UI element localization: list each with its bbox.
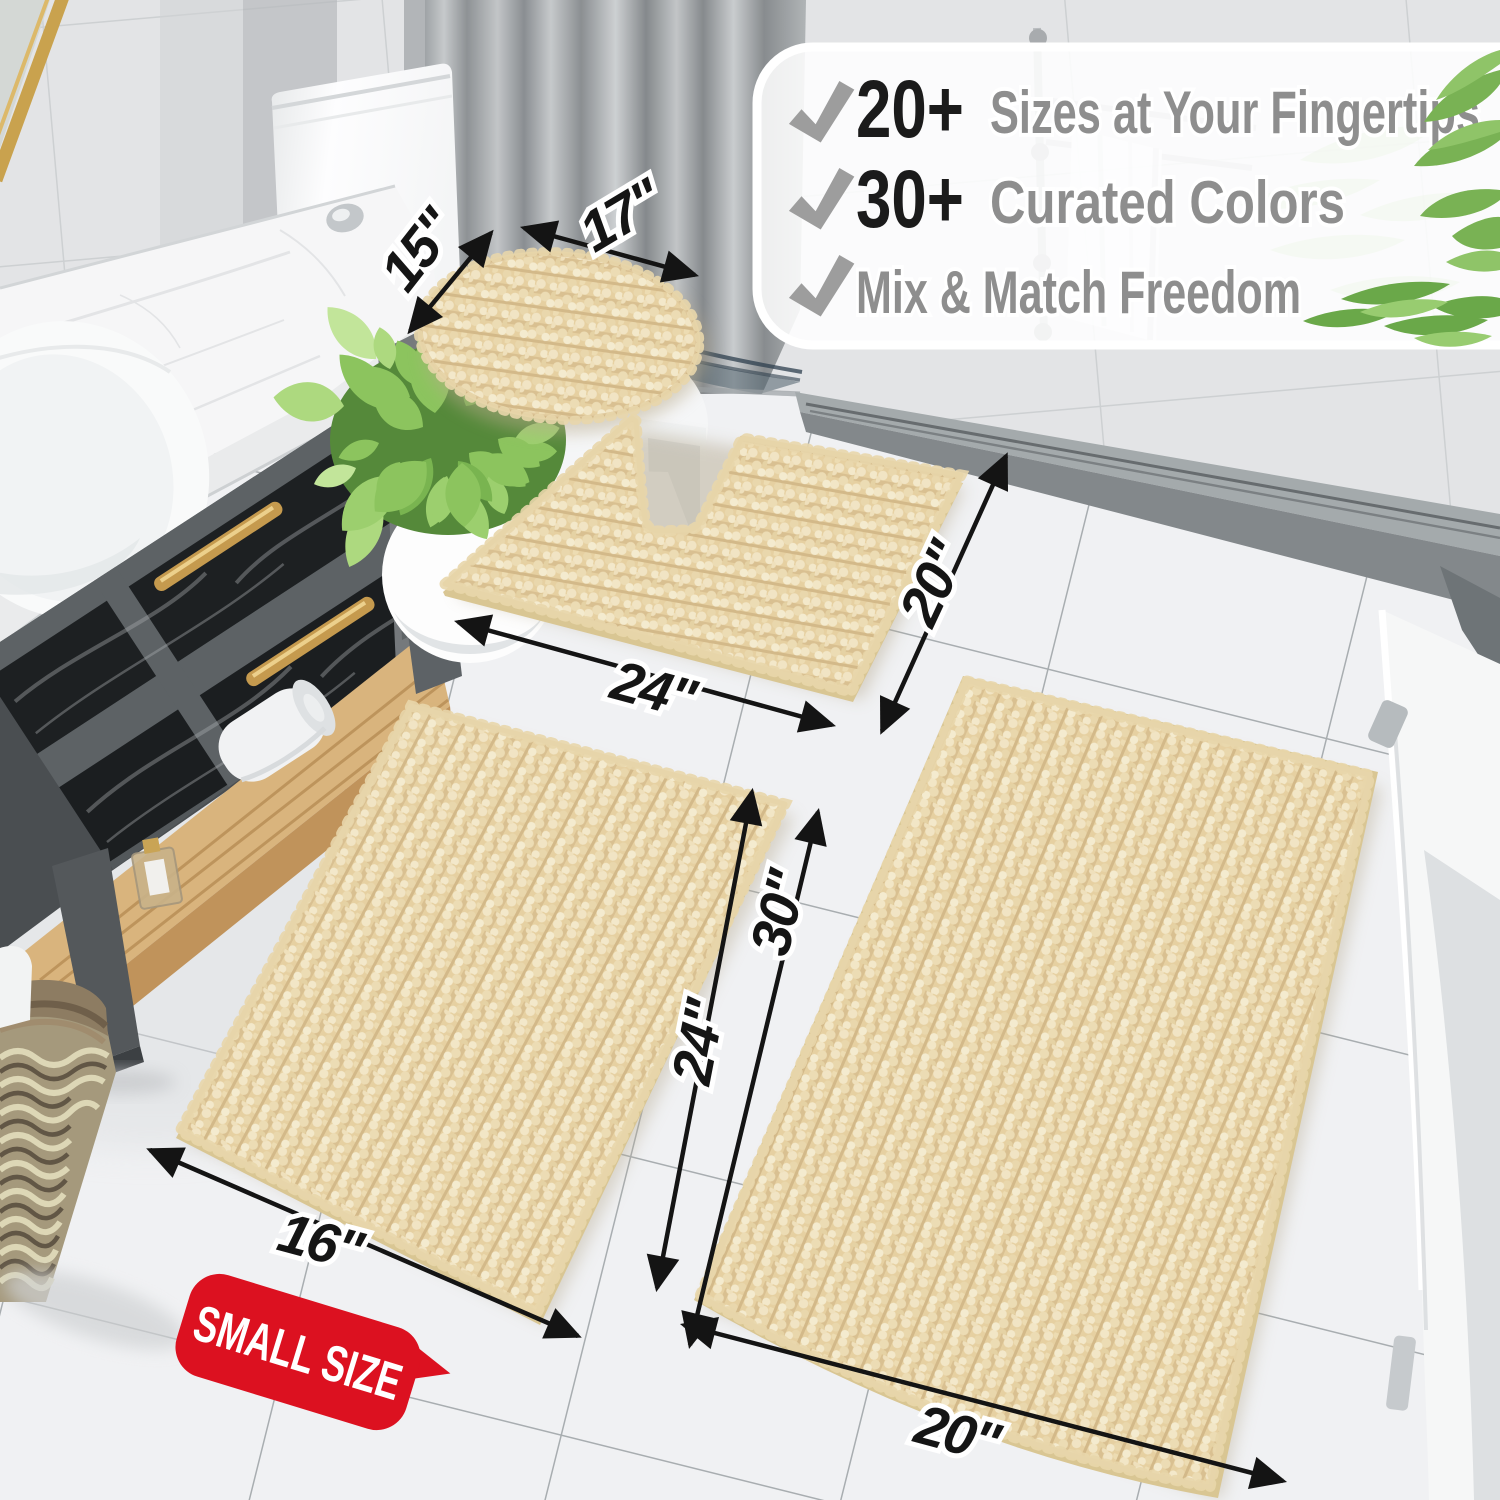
svg-text:30+: 30+: [856, 154, 964, 245]
svg-text:Sizes at Your Fingertips: Sizes at Your Fingertips: [990, 79, 1480, 146]
svg-text:20+: 20+: [856, 64, 964, 155]
svg-text:Curated Colors: Curated Colors: [990, 169, 1345, 236]
svg-text:Mix & Match Freedom: Mix & Match Freedom: [856, 259, 1301, 326]
